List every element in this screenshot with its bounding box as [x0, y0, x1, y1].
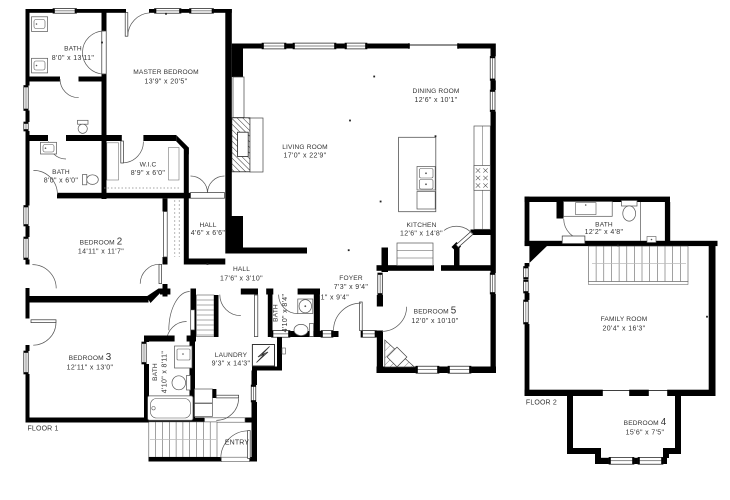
svg-text:BATH: BATH	[64, 46, 82, 53]
svg-text:8'0" x 13'11": 8'0" x 13'11"	[52, 55, 95, 62]
svg-text:13'9" x 20'5": 13'9" x 20'5"	[145, 79, 188, 86]
svg-text:HALL: HALL	[199, 222, 216, 229]
svg-text:20'4" x 16'3": 20'4" x 16'3"	[603, 326, 646, 333]
svg-text:'1" x 9'4": '1" x 9'4"	[319, 295, 349, 302]
svg-text:17'6" x 3'10": 17'6" x 3'10"	[220, 276, 263, 283]
svg-text:15'6" x 7'5": 15'6" x 7'5"	[626, 430, 665, 437]
svg-text:FLOOR 2: FLOOR 2	[526, 400, 557, 407]
svg-text:DINING ROOM: DINING ROOM	[412, 88, 459, 95]
svg-text:12'0" x 10'10": 12'0" x 10'10"	[411, 318, 458, 325]
svg-text:LIVING ROOM: LIVING ROOM	[282, 144, 328, 151]
svg-text:HALL: HALL	[233, 266, 250, 273]
svg-text:MASTER BEDROOM: MASTER BEDROOM	[133, 69, 198, 76]
svg-text:4'6" x 6'6": 4'6" x 6'6"	[191, 230, 226, 237]
svg-text:BATH: BATH	[52, 169, 70, 176]
svg-text:8'0" x 6'0": 8'0" x 6'0"	[44, 178, 79, 185]
svg-text:8'9" x 6'0": 8'9" x 6'0"	[131, 170, 166, 177]
svg-text:7'3" x 9'4": 7'3" x 9'4"	[334, 284, 369, 291]
svg-text:ENTRY: ENTRY	[225, 440, 250, 447]
svg-text:BATH: BATH	[273, 304, 280, 322]
svg-text:FLOOR 1: FLOOR 1	[28, 426, 59, 433]
svg-text:9'3" x 14'3": 9'3" x 14'3"	[212, 361, 251, 368]
svg-text:W.I.C: W.I.C	[140, 162, 157, 169]
svg-text:4'10" x 8'4": 4'10" x 8'4"	[282, 293, 289, 332]
svg-text:12'6" x 14'8": 12'6" x 14'8"	[400, 231, 443, 238]
svg-text:FAMILY ROOM: FAMILY ROOM	[601, 316, 648, 323]
svg-text:BATH: BATH	[152, 363, 159, 381]
svg-text:12'2" x 4'8": 12'2" x 4'8"	[585, 229, 624, 236]
svg-text:4'10" x 8'11": 4'10" x 8'11"	[162, 351, 169, 394]
svg-text:12'11" x 13'0": 12'11" x 13'0"	[67, 365, 114, 372]
svg-text:12'6" x 10'1": 12'6" x 10'1"	[415, 97, 458, 104]
svg-text:14'11" x 11'7": 14'11" x 11'7"	[78, 249, 124, 256]
svg-text:FOYER: FOYER	[339, 275, 363, 282]
svg-text:LAUNDRY: LAUNDRY	[215, 352, 248, 359]
svg-text:BATH: BATH	[595, 222, 613, 229]
svg-text:17'0" x 22'9": 17'0" x 22'9"	[284, 152, 327, 159]
svg-text:KITCHEN: KITCHEN	[407, 222, 437, 229]
